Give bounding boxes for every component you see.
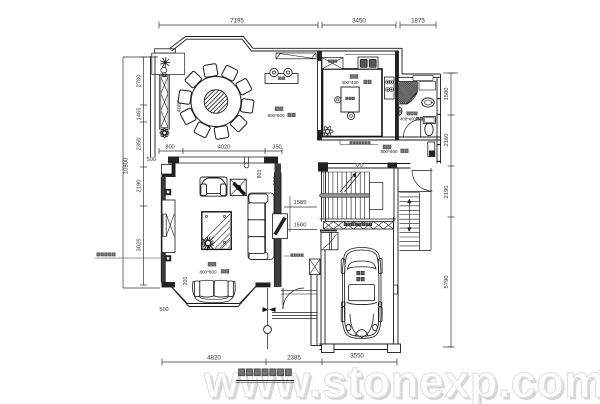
svg-text:7195: 7195	[230, 18, 244, 25]
svg-text:2190: 2190	[137, 180, 143, 193]
svg-text:4020: 4020	[218, 145, 230, 151]
svg-text:www.stonexp.com: www.stonexp.com	[203, 356, 600, 404]
svg-text:3025: 3025	[137, 239, 143, 252]
svg-text:2160: 2160	[444, 134, 450, 147]
svg-text:2780: 2780	[137, 75, 143, 88]
svg-text:400*400: 400*400	[400, 117, 416, 122]
svg-text:1875: 1875	[411, 18, 425, 25]
svg-text:800*800: 800*800	[267, 113, 285, 118]
svg-text:800: 800	[257, 170, 263, 179]
svg-text:400*400: 400*400	[341, 80, 359, 85]
svg-text:800*800: 800*800	[380, 149, 398, 154]
svg-text:200: 200	[183, 277, 189, 286]
svg-text:3450: 3450	[352, 18, 366, 25]
svg-text:800*800: 800*800	[199, 270, 217, 275]
svg-text:1500: 1500	[294, 223, 307, 229]
svg-text:500: 500	[147, 157, 156, 163]
svg-text:2350: 2350	[137, 138, 143, 151]
svg-text:10800: 10800	[124, 157, 130, 174]
svg-text:1585: 1585	[294, 200, 307, 206]
svg-text:4820: 4820	[207, 355, 221, 362]
svg-text:3550: 3550	[350, 353, 364, 360]
svg-text:2190: 2190	[444, 186, 450, 199]
svg-text:500: 500	[159, 307, 168, 313]
svg-text:350: 350	[272, 145, 281, 151]
svg-text:5790: 5790	[444, 276, 450, 289]
svg-text:1465: 1465	[137, 108, 143, 121]
svg-text:1580: 1580	[444, 88, 450, 101]
svg-text:800: 800	[165, 145, 174, 151]
svg-text:2385: 2385	[287, 355, 301, 362]
